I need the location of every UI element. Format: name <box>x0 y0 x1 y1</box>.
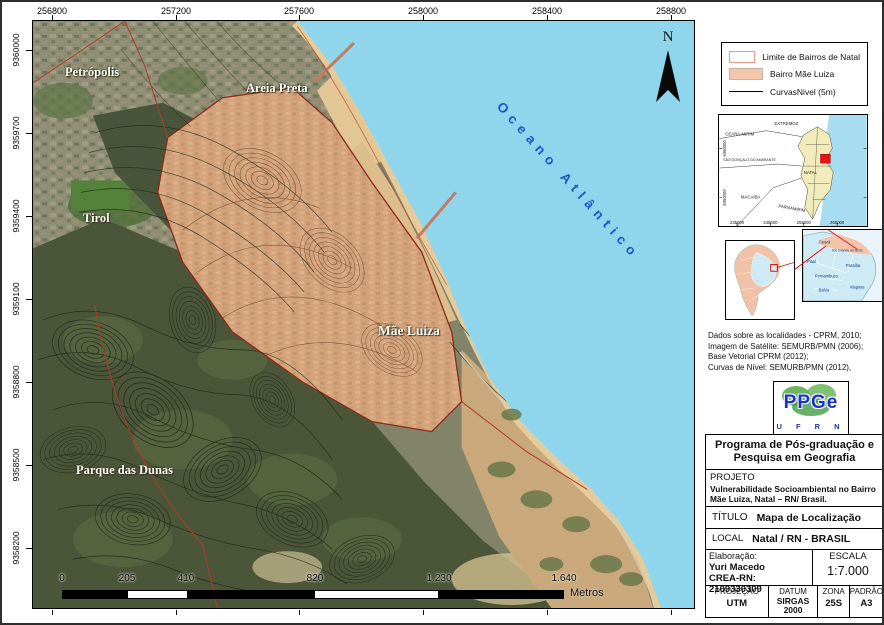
label-bahia: Bahia <box>819 287 830 292</box>
logo-subtext: U F R N <box>774 422 848 431</box>
titulo-row: TÍTULO Mapa de Localização <box>706 507 883 529</box>
source-line: Curvas de Nível: SEMURB/PMN (2012), <box>708 363 884 374</box>
inset-y-label: 9350000 <box>722 189 727 206</box>
escala-value: 1:7.000 <box>813 564 883 578</box>
scale-tick-label: 1.230 <box>417 573 461 584</box>
label-paraiba: Paraíba <box>846 263 861 268</box>
source-line: Dados sobre as localidades - CPRM, 2010; <box>708 331 884 342</box>
legend-swatch-outline <box>729 51 755 63</box>
zona-cell: ZONA 25S <box>818 586 849 617</box>
label-ceara-mirim: CEARÁ-MIRIM <box>725 132 754 137</box>
inset-x-label: 265000 <box>830 220 845 225</box>
elaboracao-label: Elaboração: <box>709 551 809 562</box>
scale-bar-segments <box>62 590 564 599</box>
scale-segment <box>315 591 439 598</box>
label-pernambuco: Pernambuco <box>815 274 839 279</box>
main-map: Petrópolis Areia Preta Tirol Mãe Luiza P… <box>32 20 695 609</box>
logo-text: PPGe <box>774 392 848 414</box>
local-value: Natal / RN - BRASIL <box>752 533 850 545</box>
legend-item-curvas: CurvasNivel (5m) <box>729 84 860 99</box>
scale-unit-label: Metros <box>570 587 604 599</box>
y-axis-label: 9359100 <box>10 271 22 327</box>
inset-x-label: 255000 <box>797 220 812 225</box>
source-line: Imagem de Satélite: SEMURB/PMN (2006); <box>708 342 884 353</box>
legend-swatch-fill <box>729 68 763 80</box>
scale-segment <box>63 591 128 598</box>
projecao-label: PROJEÇÃO <box>706 587 768 596</box>
titulo-label: TÍTULO <box>712 512 748 523</box>
scale-tick-label: 820 <box>293 573 337 584</box>
north-arrow-icon <box>650 46 686 106</box>
label-macaiba: MACAÍBA <box>741 194 761 199</box>
inset-x-label: 235000 <box>730 220 745 225</box>
y-axis-label: 9360000 <box>10 22 22 78</box>
local-label: LOCAL <box>712 533 743 544</box>
legend-item-bairro: Bairro Mãe Luiza <box>729 67 860 82</box>
inset-map-brazil <box>725 240 795 320</box>
y-axis-label: 9359700 <box>10 105 22 161</box>
ppge-ufrn-logo: PPGe U F R N <box>773 381 849 435</box>
legend-label: Bairro Mãe Luiza <box>770 69 834 79</box>
y-axis-label: 9358200 <box>10 520 22 576</box>
escala-label: ESCALA <box>813 551 883 562</box>
datum-cell: DATUM SIRGAS 2000 <box>769 586 819 617</box>
axis-tick <box>52 610 53 615</box>
map-layout-page: 256800 257200 257600 258000 258400 25880… <box>0 0 884 625</box>
axis-tick <box>423 610 424 615</box>
axis-tick <box>547 610 548 615</box>
zona-label: ZONA <box>818 587 848 596</box>
local-row: LOCAL Natal / RN - BRASIL <box>706 529 883 550</box>
scale-segment <box>128 591 187 598</box>
north-letter: N <box>645 29 691 46</box>
study-area-marker <box>821 154 831 163</box>
place-label-parque-das-dunas: Parque das Dunas <box>76 463 173 478</box>
scale-tick-label: 1.640 <box>542 573 586 584</box>
datum-label: DATUM <box>769 587 818 596</box>
inset-connector-line <box>792 242 828 274</box>
inset-municipalities-art: CEARÁ-MIRIM EXTREMOZ SÃO GONÇALO DO AMAR… <box>719 115 867 226</box>
scale-tick-label: 0 <box>40 573 84 584</box>
legend-item-limite: Limite de Bairros de Natal <box>729 49 860 64</box>
scale-tick-label: 205 <box>105 573 149 584</box>
label-rn: Rio Grande do Norte <box>832 248 863 252</box>
projection-row: PROJEÇÃO UTM DATUM SIRGAS 2000 ZONA 25S … <box>706 586 883 617</box>
program-title: Programa de Pós-graduação e Pesquisa em … <box>706 435 883 470</box>
y-axis-label: 9358800 <box>10 354 22 410</box>
place-label-petropolis: Petrópolis <box>65 65 119 80</box>
inset-x-label: 245000 <box>763 220 778 225</box>
inset-y-label: 9360000 <box>722 140 727 157</box>
projecao-cell: PROJEÇÃO UTM <box>706 586 769 617</box>
axis-tick <box>671 610 672 615</box>
label-sao-goncalo: SÃO GONÇALO DO AMARANTE <box>723 157 776 162</box>
scale-tick-label: 410 <box>164 573 208 584</box>
elaboracao-row: Elaboração: Yuri Macedo CREA-RN: 2109330… <box>706 550 883 586</box>
projeto-row: PROJETO Vulnerabilidade Socioambiental n… <box>706 470 883 507</box>
legend-label: CurvasNivel (5m) <box>770 87 836 97</box>
label-alagoas: Alagoas <box>850 284 865 289</box>
place-label-tirol: Tirol <box>83 211 110 226</box>
inset-brazil-art <box>726 241 794 319</box>
satellite-map-art <box>33 21 694 608</box>
y-axis-label: 9359400 <box>10 188 22 244</box>
title-block: Programa de Pós-graduação e Pesquisa em … <box>705 434 884 618</box>
padrao-cell: PADRÃO A3 <box>850 586 883 617</box>
place-label-mae-luiza: Mãe Luiza <box>378 323 440 339</box>
projeto-label: PROJETO <box>710 472 879 483</box>
axis-tick <box>299 610 300 615</box>
padrao-label: PADRÃO <box>850 587 883 596</box>
label-extremoz: EXTREMOZ <box>774 121 798 126</box>
zona-value: 25S <box>818 598 848 609</box>
titulo-value: Mapa de Localização <box>757 512 861 524</box>
datum-value: SIRGAS 2000 <box>769 597 818 615</box>
label-natal: NATAL <box>804 170 818 175</box>
projeto-value: Vulnerabilidade Socioambiental no Bairro… <box>710 484 879 504</box>
escala-cell: ESCALA 1:7.000 <box>813 550 883 585</box>
axis-tick <box>176 610 177 615</box>
legend-swatch-line <box>729 91 763 92</box>
legend-label: Limite de Bairros de Natal <box>762 52 860 62</box>
north-arrow: N <box>645 29 691 111</box>
source-line: Base Vetorial CPRM (2012); <box>708 352 884 363</box>
data-sources: Dados sobre as localidades - CPRM, 2010;… <box>708 331 884 373</box>
inset-map-municipalities: CEARÁ-MIRIM EXTREMOZ SÃO GONÇALO DO AMAR… <box>718 114 868 227</box>
padrao-value: A3 <box>850 598 883 609</box>
scale-segment <box>187 591 315 598</box>
scale-segment <box>438 591 563 598</box>
place-label-areia-preta: Areia Preta <box>246 81 308 96</box>
scale-bar: 0 205 410 820 1.230 1.640 Metros <box>33 573 695 609</box>
y-axis-label: 9358500 <box>10 437 22 493</box>
legend-box: Limite de Bairros de Natal Bairro Mãe Lu… <box>721 42 868 106</box>
elaboracao-cell: Elaboração: Yuri Macedo CREA-RN: 2109330… <box>706 550 813 585</box>
projecao-value: UTM <box>706 598 768 609</box>
elaboracao-name: Yuri Macedo <box>709 562 809 573</box>
